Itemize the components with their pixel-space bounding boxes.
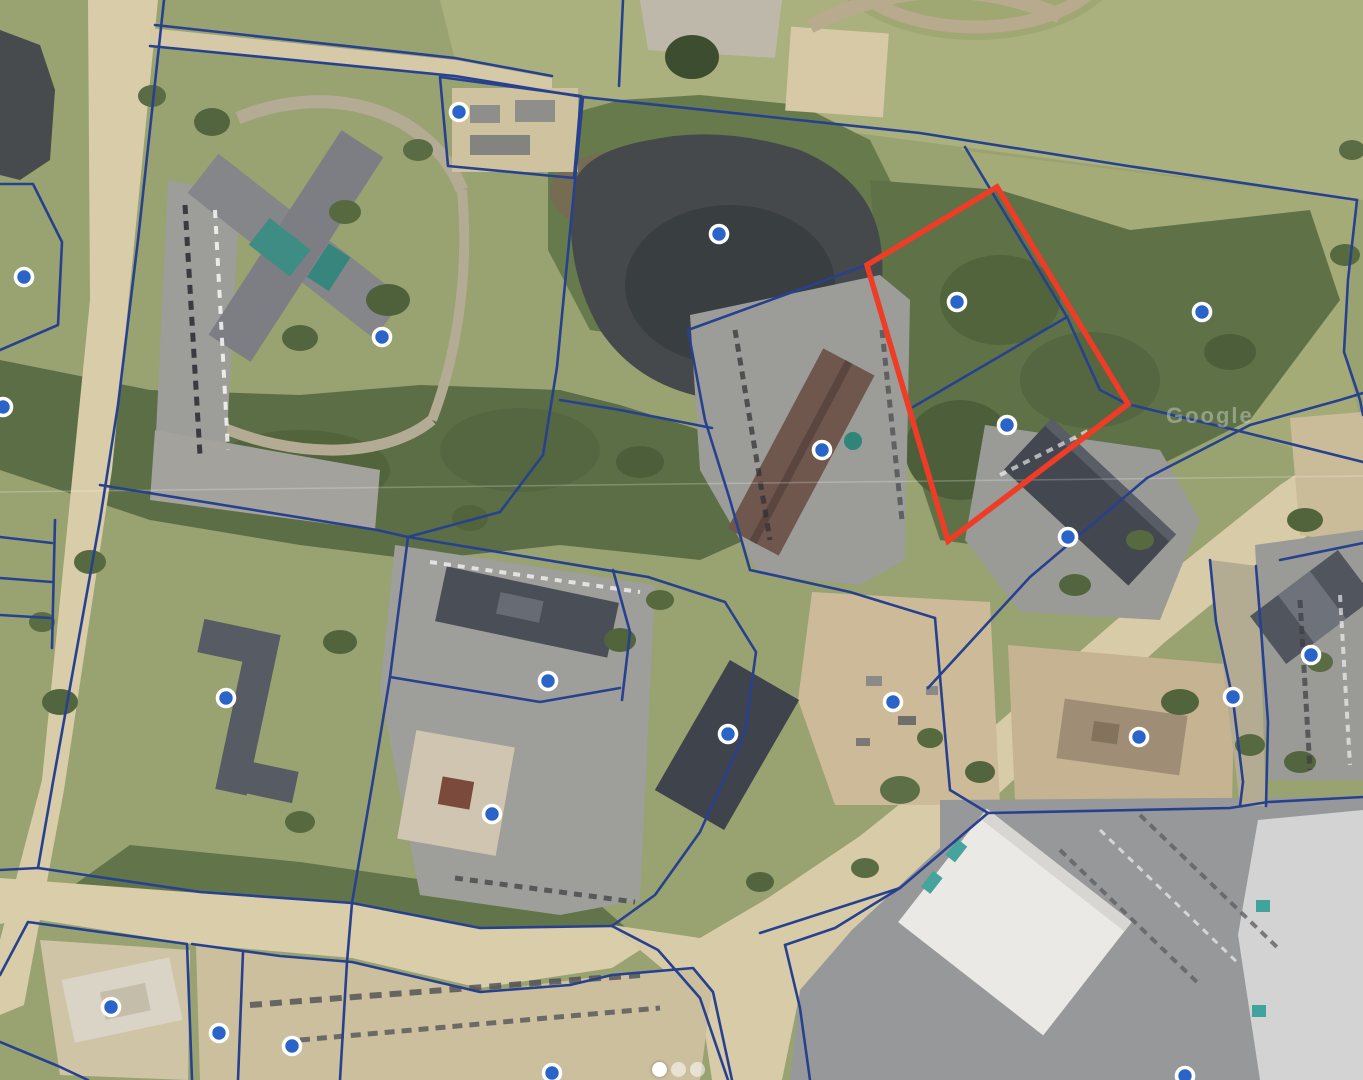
map-marker[interactable] (449, 102, 470, 123)
parcel-boundary-line (0, 578, 52, 582)
parcel-boundary-line (38, 0, 164, 868)
parcel-boundary-line (52, 520, 55, 648)
parcel-boundary-line (688, 265, 867, 330)
marker-dot (1000, 418, 1013, 431)
marker-dot (545, 1066, 558, 1079)
photo-carousel-dots (652, 1062, 705, 1077)
parcel-boundary-line (38, 868, 612, 928)
marker-dot (721, 727, 734, 740)
carousel-dot-3[interactable] (690, 1062, 705, 1077)
marker-dot (452, 105, 465, 118)
map-marker[interactable] (718, 724, 739, 745)
parcel-boundary-line (1344, 200, 1363, 415)
parcel-boundary-line (1210, 560, 1243, 806)
map-overlay (0, 0, 1363, 1080)
parcel-boundary-line (155, 25, 552, 76)
map-marker[interactable] (542, 1063, 563, 1080)
parcel-boundary-line (440, 77, 581, 178)
marker-dot (815, 443, 828, 456)
map-marker[interactable] (883, 692, 904, 713)
map-marker[interactable] (947, 292, 968, 313)
parcel-boundary-line (619, 0, 623, 86)
marker-dot (1195, 305, 1208, 318)
parcel-boundary-line (785, 888, 900, 945)
map-marker[interactable] (216, 688, 237, 709)
map-marker[interactable] (997, 415, 1018, 436)
map-marker[interactable] (282, 1036, 303, 1057)
parcel-boundary-line (612, 577, 756, 926)
parcel-boundary-line (612, 926, 728, 1080)
marker-dot (541, 674, 554, 687)
map-marker[interactable] (1223, 687, 1244, 708)
parcel-boundary-line (750, 570, 935, 618)
map-marker[interactable] (1192, 302, 1213, 323)
parcel-boundary-line (0, 615, 50, 618)
map-marker[interactable] (482, 804, 503, 825)
parcel-boundary-line (1280, 543, 1363, 560)
parcel-boundary-line (150, 46, 1357, 200)
parcel-boundary-line (0, 868, 38, 870)
marker-dot (212, 1026, 225, 1039)
marker-dot (1304, 648, 1317, 661)
parcel-boundary-line (688, 330, 750, 570)
marker-dot (712, 227, 725, 240)
parcel-boundary-line (935, 618, 988, 813)
parcel-boundary-line (340, 903, 352, 1080)
parcel-boundary-line (1256, 566, 1268, 806)
parcel-boundary-line (0, 922, 192, 1080)
parcel-boundary-line (0, 184, 62, 350)
parcel-boundary-line (100, 485, 408, 537)
map-marker[interactable] (812, 440, 833, 461)
parcel-boundary-line (760, 797, 1363, 933)
aerial-map[interactable]: Google (0, 0, 1363, 1080)
parcel-boundary-line (390, 677, 620, 702)
parcel-boundary-line (238, 952, 243, 1080)
marker-dot (375, 330, 388, 343)
map-marker[interactable] (709, 224, 730, 245)
parcel-boundaries (0, 0, 1363, 1080)
marker-dot (950, 295, 963, 308)
map-marker[interactable] (1058, 527, 1079, 548)
parcel-boundary-line (192, 944, 732, 1080)
parcel-boundary-line (560, 400, 712, 428)
parcel-boundary-line (0, 537, 52, 543)
carousel-dot-2[interactable] (671, 1062, 686, 1077)
marker-dot (219, 691, 232, 704)
markers-layer (0, 102, 1321, 1080)
marker-dot (1061, 530, 1074, 543)
map-marker[interactable] (1175, 1066, 1196, 1080)
map-marker[interactable] (372, 327, 393, 348)
map-marker[interactable] (1129, 727, 1150, 748)
marker-dot (285, 1039, 298, 1052)
map-marker[interactable] (101, 997, 122, 1018)
map-marker[interactable] (0, 397, 13, 418)
parcel-boundary-line (352, 537, 408, 903)
marker-dot (1226, 690, 1239, 703)
marker-dot (17, 270, 30, 283)
parcel-boundary-line (0, 1042, 88, 1080)
parcel-boundary-line (613, 570, 630, 700)
map-marker[interactable] (209, 1023, 230, 1044)
parcel-boundary-line (913, 317, 1067, 407)
map-marker[interactable] (538, 671, 559, 692)
map-marker[interactable] (14, 267, 35, 288)
marker-dot (104, 1000, 117, 1013)
carousel-dot-1[interactable] (652, 1062, 667, 1077)
marker-dot (485, 807, 498, 820)
parcel-boundary-line (785, 945, 810, 1080)
map-marker[interactable] (1301, 645, 1322, 666)
marker-dot (886, 695, 899, 708)
parcel-boundary-line (928, 393, 1363, 688)
marker-dot (1132, 730, 1145, 743)
parcel-boundary-line (1127, 404, 1363, 462)
parcel-boundary-line (408, 97, 583, 537)
